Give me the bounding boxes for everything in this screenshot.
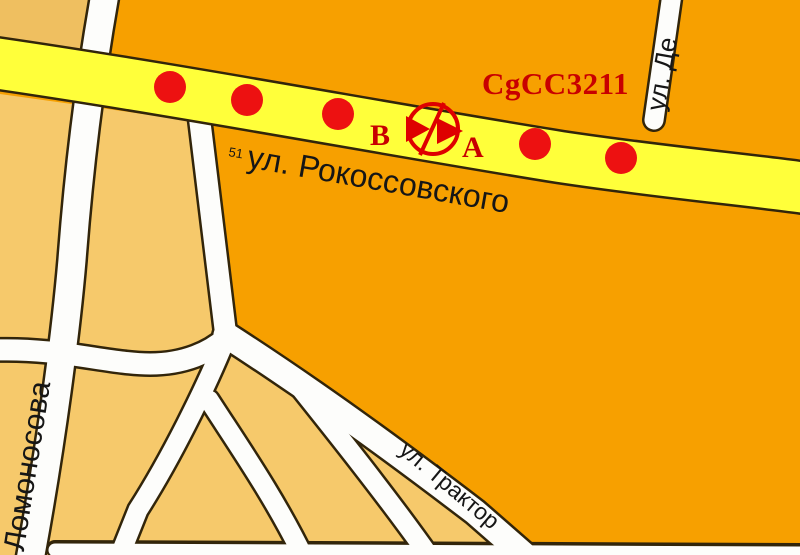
house-number-label: 51 <box>227 144 244 161</box>
billboard-dot[interactable] <box>519 128 551 160</box>
map-canvas: CgCC3211 B A 51 ул. Рокоссовского ул. Ло… <box>0 0 800 555</box>
billboard-dot[interactable] <box>605 142 637 174</box>
billboard-dot[interactable] <box>231 84 263 116</box>
billboard-dot[interactable] <box>154 71 186 103</box>
map-svg: CgCC3211 B A 51 ул. Рокоссовского ул. Ло… <box>0 0 800 555</box>
billboard-code-label: CgCC3211 <box>482 66 629 101</box>
side-b-label: B <box>370 119 390 152</box>
billboard-dot[interactable] <box>322 98 354 130</box>
side-a-label: A <box>462 131 484 164</box>
road-bottom <box>55 550 800 553</box>
